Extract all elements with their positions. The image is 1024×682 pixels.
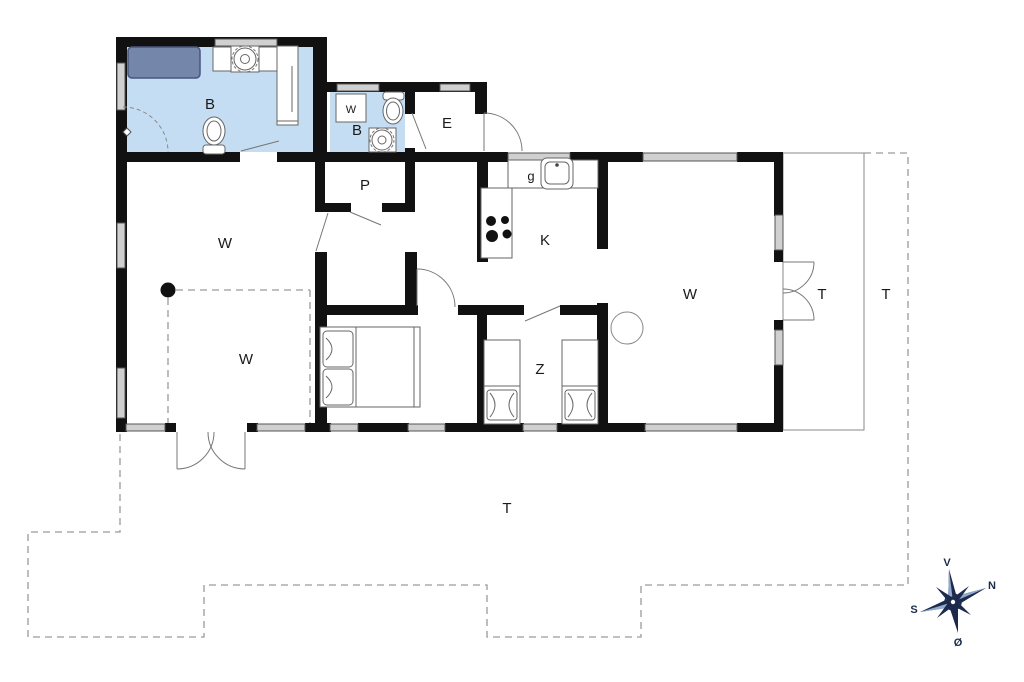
children-room-door-leaf bbox=[525, 306, 560, 321]
shower-mat-icon bbox=[128, 47, 200, 78]
label-bath-main: B bbox=[205, 96, 215, 113]
annex-corner-dot bbox=[161, 283, 176, 298]
label-bedroom-children: Z bbox=[535, 361, 544, 378]
double-bed-icon bbox=[320, 327, 420, 407]
label-living-right: W bbox=[683, 286, 698, 303]
storage-door-leaf bbox=[350, 212, 381, 225]
label-living-main: W bbox=[218, 235, 233, 252]
label-living-annex: W bbox=[239, 351, 254, 368]
bath-small-door-leaf bbox=[412, 113, 426, 149]
bedroom-door-arc bbox=[417, 269, 455, 307]
label-terrace-covered: T bbox=[817, 286, 826, 303]
label-gas: g bbox=[527, 168, 534, 183]
toilet-icon bbox=[383, 92, 404, 124]
patio-door-east-bottom-arc bbox=[783, 289, 814, 320]
single-bed-icon bbox=[562, 340, 598, 424]
compass-west-label: V bbox=[943, 557, 951, 569]
label-terrace-south: T bbox=[502, 500, 511, 517]
label-storage: P bbox=[360, 177, 370, 194]
washbasin-icon bbox=[369, 128, 396, 152]
wood-stove-icon bbox=[611, 312, 643, 344]
label-terrace-open: T bbox=[881, 286, 890, 303]
compass-rose-icon: V N S Ø bbox=[910, 557, 996, 649]
label-kitchen: K bbox=[540, 232, 550, 249]
floor-plan-page: B W B E P g K W W W Z T T T V N S Ø bbox=[0, 0, 1024, 682]
label-bath-small: B bbox=[352, 122, 362, 139]
tall-cabinet bbox=[277, 46, 298, 125]
patio-door-east-top-arc bbox=[783, 262, 814, 293]
living-door-leaf bbox=[316, 213, 328, 251]
entrance-door-arc bbox=[484, 113, 522, 151]
toilet-icon bbox=[203, 117, 225, 154]
label-entrance: E bbox=[442, 115, 452, 132]
kitchen-sink-icon bbox=[541, 158, 573, 189]
compass-south-label: S bbox=[910, 604, 917, 616]
compass-east-label: Ø bbox=[954, 637, 963, 649]
washbasin-icon bbox=[231, 46, 259, 72]
single-bed-icon bbox=[484, 340, 520, 424]
floor-plan-svg: B W B E P g K W W W Z T T T V N S Ø bbox=[0, 0, 1024, 682]
compass-north-label: N bbox=[988, 580, 996, 592]
label-washing-machine: W bbox=[346, 104, 357, 116]
